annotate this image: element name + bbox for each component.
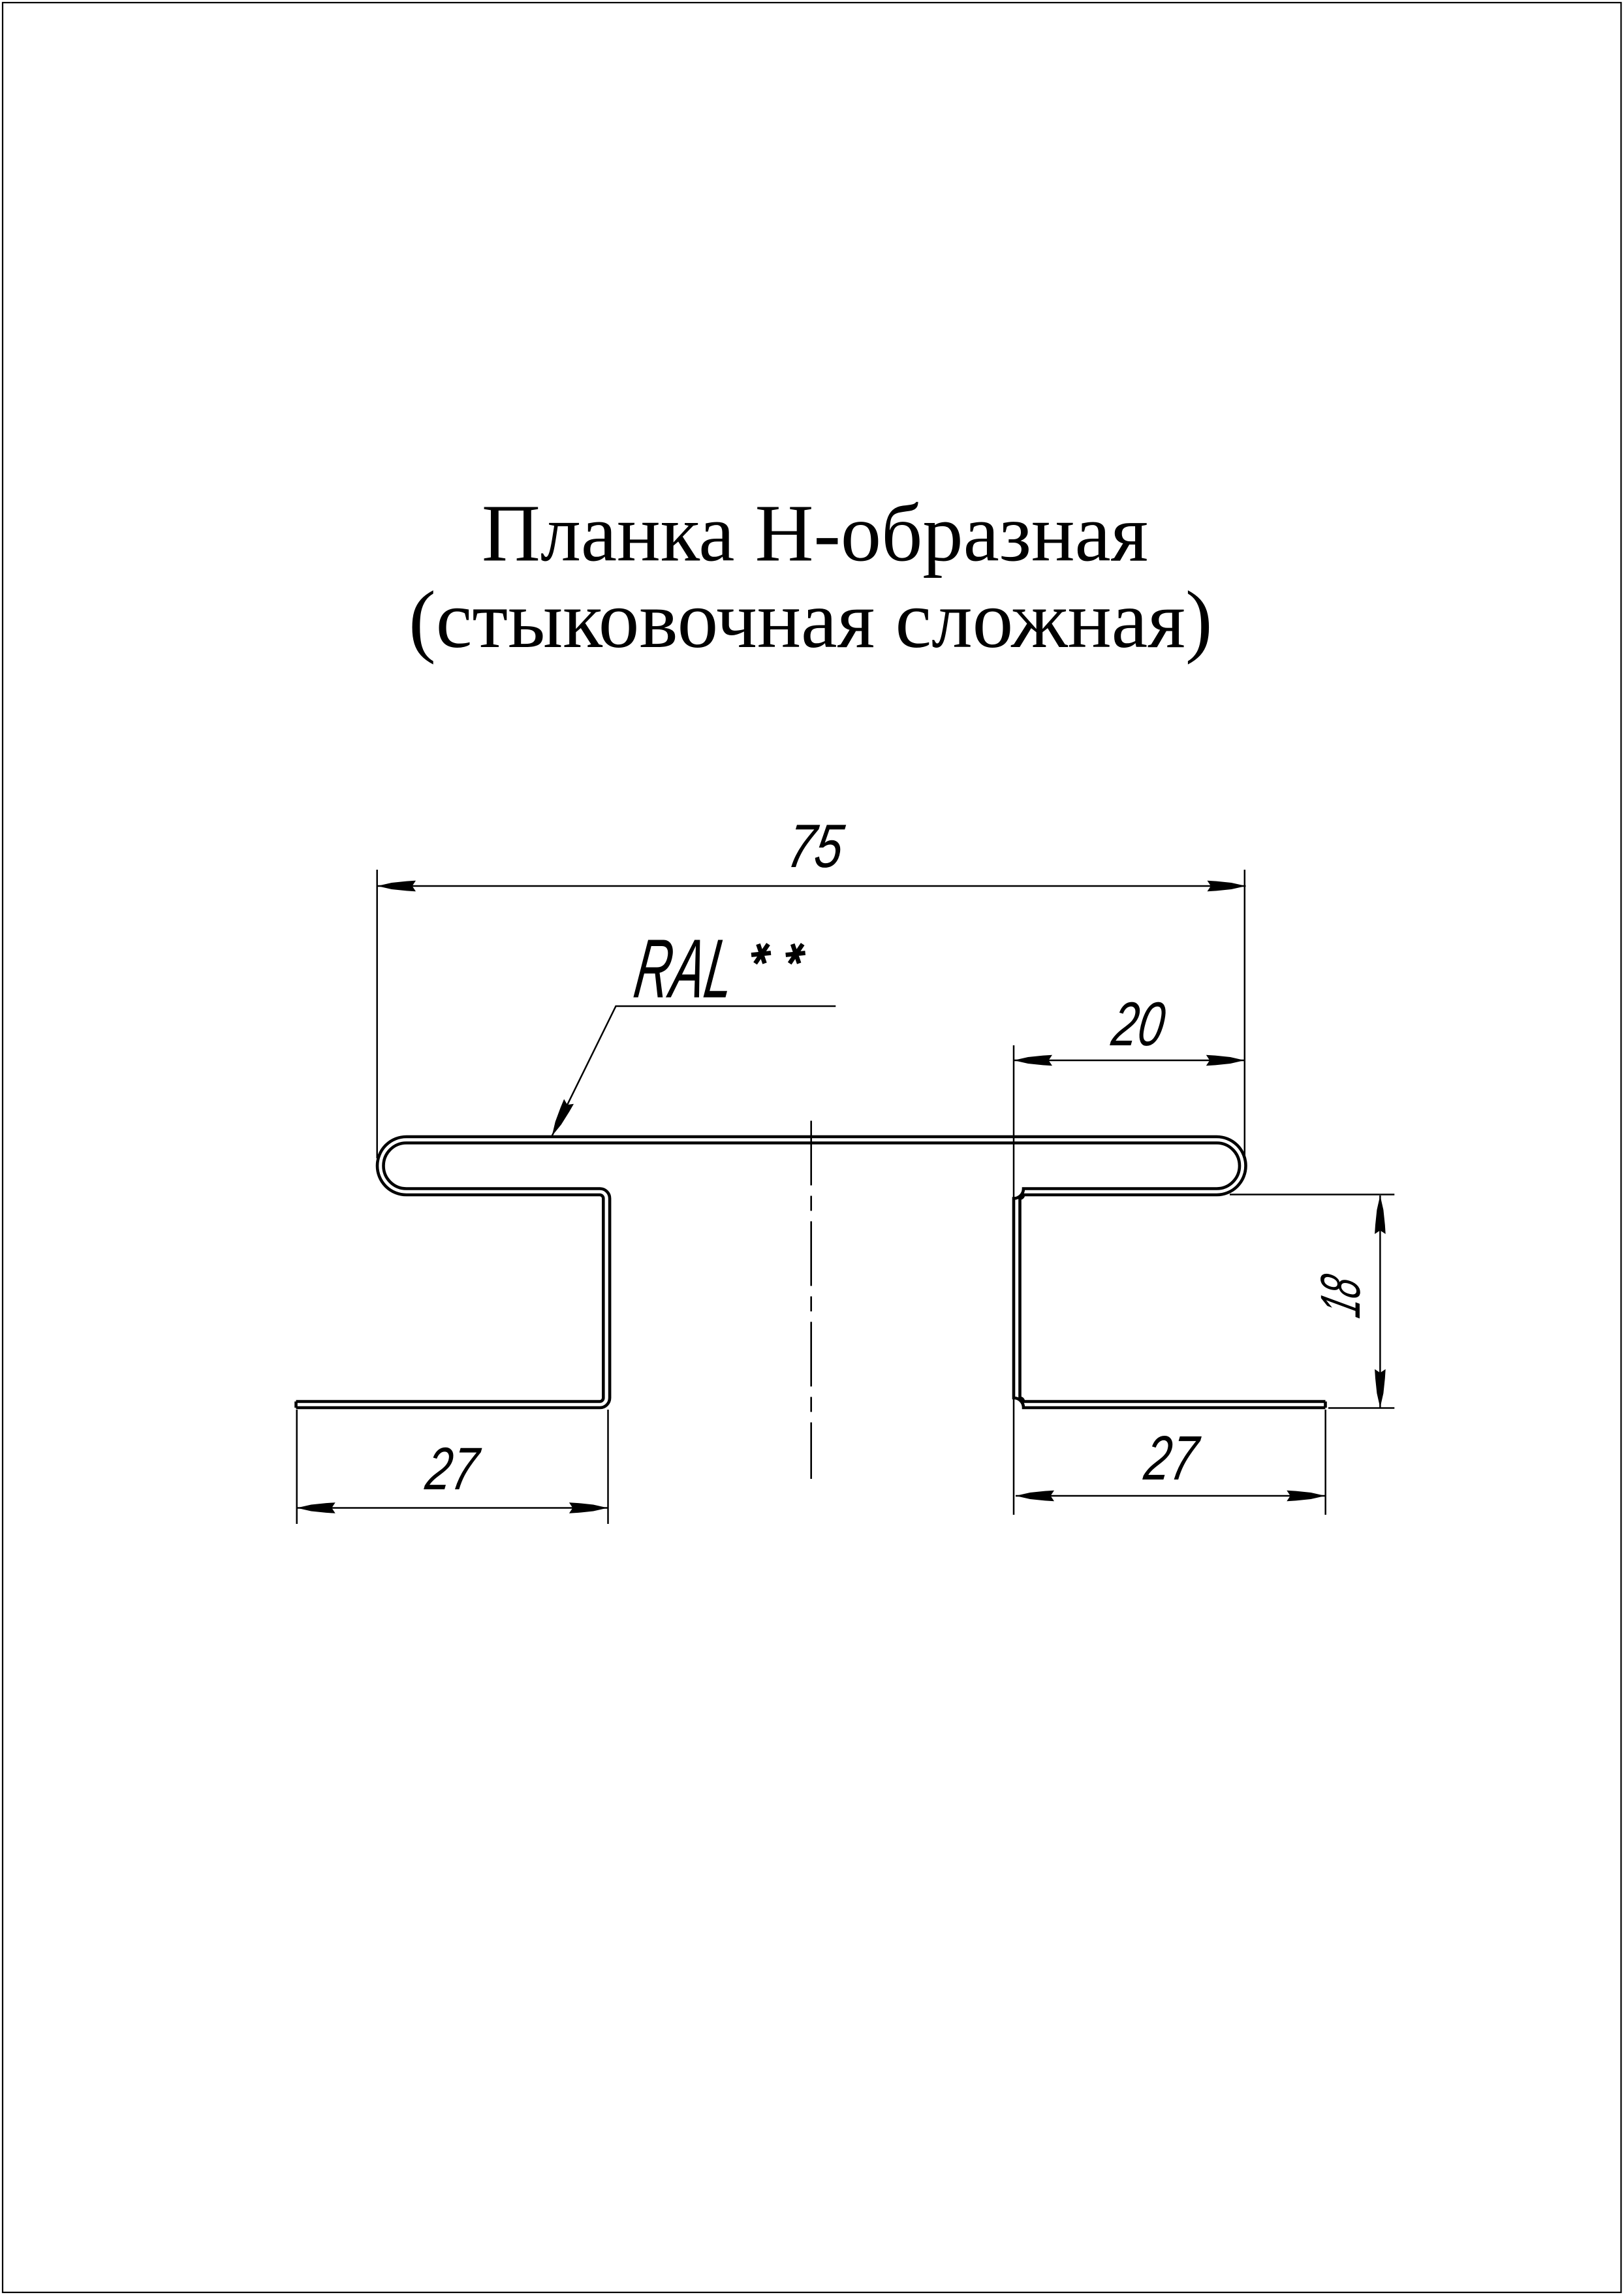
svg-text:75: 75 [783, 812, 848, 880]
svg-text:(стыковочная сложная): (стыковочная сложная) [409, 575, 1213, 665]
svg-text:27: 27 [422, 1434, 484, 1502]
svg-text:RAL: RAL [629, 923, 740, 1015]
svg-text:18: 18 [1309, 1269, 1372, 1322]
svg-text:20: 20 [1108, 990, 1170, 1058]
svg-text:27: 27 [1140, 1423, 1204, 1493]
svg-text:Планка Н-образная: Планка Н-образная [482, 488, 1148, 579]
